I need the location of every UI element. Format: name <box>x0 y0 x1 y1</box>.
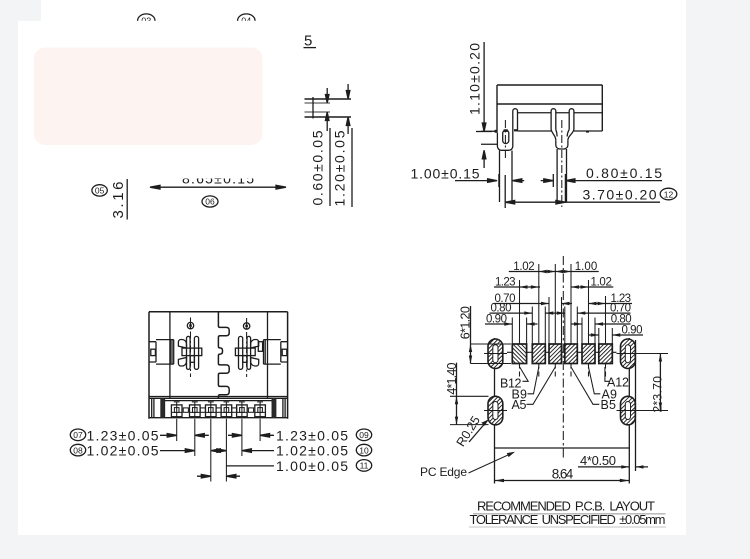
svg-text:3.70±0.20: 3.70±0.20 <box>583 186 657 202</box>
svg-text:07: 07 <box>73 430 83 440</box>
svg-text:3.16: 3.16 <box>110 182 127 219</box>
svg-text:4*0.50: 4*0.50 <box>580 453 616 468</box>
svg-text:09: 09 <box>359 430 369 440</box>
svg-text:2*3.70: 2*3.70 <box>651 376 665 413</box>
svg-text:8.64: 8.64 <box>552 466 574 481</box>
svg-text:1.10±0.20: 1.10±0.20 <box>467 43 483 115</box>
svg-text:1.20±0.05: 1.20±0.05 <box>332 130 348 206</box>
svg-text:10: 10 <box>359 445 369 455</box>
svg-text:PC Edge: PC Edge <box>420 465 467 479</box>
svg-text:0.80±0.15: 0.80±0.15 <box>586 165 662 181</box>
svg-text:A5: A5 <box>512 398 527 412</box>
svg-text:08: 08 <box>73 445 83 455</box>
svg-text:11: 11 <box>360 461 369 471</box>
svg-text:1.02±0.05: 1.02±0.05 <box>87 443 159 459</box>
svg-text:1.23±0.05: 1.23±0.05 <box>87 427 159 443</box>
svg-text:B5: B5 <box>601 398 617 412</box>
svg-text:12: 12 <box>664 189 674 199</box>
svg-text:1.23±0.05: 1.23±0.05 <box>276 427 348 443</box>
svg-text:TOLERANCE UNSPECIFIED ±0.05m: TOLERANCE UNSPECIFIED ±0.05mm <box>470 512 666 527</box>
svg-text:0.60±0.05: 0.60±0.05 <box>310 130 326 205</box>
svg-text:06: 06 <box>205 197 215 207</box>
svg-text:1.00±0.05: 1.00±0.05 <box>276 458 348 474</box>
svg-text:05: 05 <box>95 186 105 196</box>
svg-text:1.02±0.05: 1.02±0.05 <box>276 443 348 459</box>
svg-text:1.00±0.15: 1.00±0.15 <box>411 166 480 182</box>
